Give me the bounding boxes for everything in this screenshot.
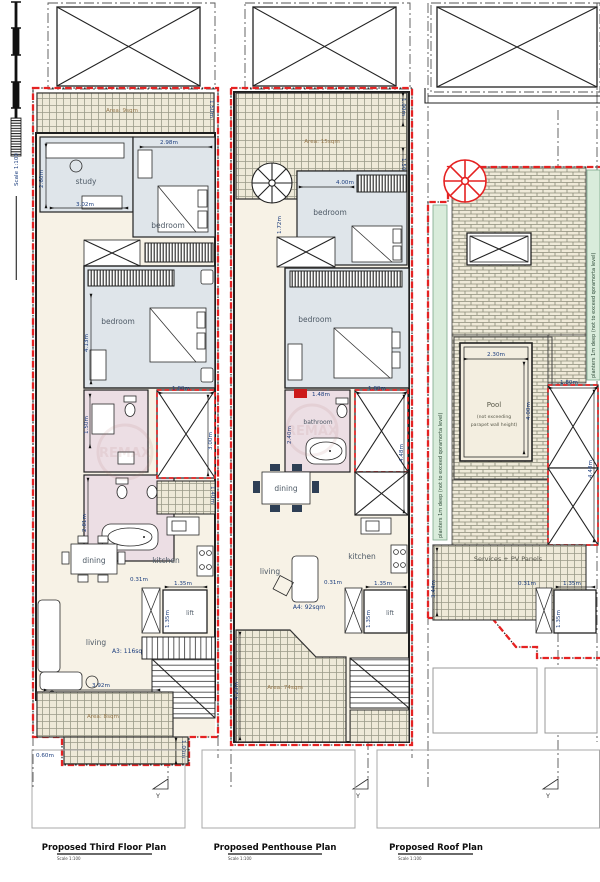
- planter-left-label: planters 1m deep (not to exceed qoramort…: [438, 412, 444, 538]
- terrace-area-label: Area: 9sqm: [106, 108, 138, 114]
- dim-step: 0.31m: [518, 581, 536, 587]
- dim-lift-w: 1.35m: [374, 581, 392, 587]
- dim-shaft-w: 1.80m: [560, 380, 578, 386]
- apartment-area-label: A4: 92sqm: [293, 604, 325, 611]
- dim-pool-w: 2.30m: [487, 352, 505, 358]
- dim-shaft-h: 4.48m: [588, 460, 594, 478]
- dim-shaft-h: 3.00m: [208, 432, 214, 450]
- planter-right-label: planters 1m deep (not to exceed qoramort…: [591, 252, 597, 378]
- lower-roof-right: [545, 668, 597, 733]
- room-label-bedroom2: bedroom: [101, 317, 135, 326]
- room-label-bedroom1: bedroom: [151, 221, 185, 230]
- room-label-dining: dining: [274, 484, 297, 493]
- svg-text:REMAX: REMAX: [286, 424, 338, 439]
- dim-living-w: 3.92m: [92, 683, 110, 689]
- title-roof: Proposed Roof Plan: [389, 843, 483, 853]
- architectural-drawing-sheet: Scale 1:100 Area: 9sqm 1.50m study 2.60m…: [0, 0, 600, 882]
- room-label-kitchen: kitchen: [152, 556, 180, 565]
- dim-terrace-depth: 1.50m: [208, 100, 214, 118]
- dim-bath2-h: 2.81m: [82, 514, 88, 532]
- section-marker: Y: [155, 792, 160, 800]
- dim-terrace-h: 4.23m: [234, 682, 240, 700]
- title-third-floor: Proposed Third Floor Plan: [42, 843, 167, 853]
- room-label-lift: lift: [186, 610, 194, 617]
- dim-shaft-h: 4.48m: [399, 444, 405, 462]
- plan-roof: planters 1m deep (not to exceed qoramort…: [425, 3, 600, 800]
- dim-lift-h: 1.35m: [165, 610, 171, 628]
- dim-balcony-s: 0.60m: [36, 753, 54, 759]
- scale-bar-label: Scale 1:100: [14, 153, 20, 186]
- plan-penthouse: Area: 15sqm 1.00m 1.50m 4.00m bedroom 1.…: [231, 3, 412, 800]
- dim-lift-h: 1.35m: [556, 610, 562, 628]
- pool-note2: parapet wall height): [471, 422, 518, 428]
- stairs-upper: [142, 637, 215, 659]
- room-label-living: living: [260, 567, 280, 576]
- dim-step: 0.31m: [324, 580, 342, 586]
- dim-lift-w: 1.35m: [174, 581, 192, 587]
- terrace2-area-label: Area: 74sqm: [267, 685, 303, 691]
- section-marker: Y: [355, 792, 360, 800]
- svg-text:REMAX: REMAX: [99, 446, 151, 461]
- tub-tag: [294, 389, 307, 398]
- lower-roof-left: [433, 668, 537, 733]
- room-label-lift: lift: [386, 610, 394, 617]
- dim-bed1-w: 2.98m: [160, 140, 178, 146]
- dim-shaft-w: 1.80m: [368, 386, 386, 392]
- dim-study-w: 3.02m: [76, 202, 94, 208]
- terrace-area-label: Area: 15sqm: [304, 139, 340, 145]
- room-label-bedroom1: bedroom: [313, 208, 347, 217]
- spiral-stair: [252, 163, 292, 203]
- room-label-study: study: [76, 177, 97, 186]
- room-label-kitchen: kitchen: [348, 552, 376, 561]
- title-penthouse: Proposed Penthouse Plan: [214, 843, 337, 853]
- dim-terrace-d1: 1.00m: [400, 98, 406, 116]
- dim-bed2-h: 4.13m: [84, 334, 90, 352]
- scale-bar: Scale 1:100: [11, 2, 21, 280]
- services-label: Services + PV Panels: [474, 555, 543, 563]
- scale-note-2: Scale 1:100: [228, 856, 252, 861]
- section-marker: Y: [545, 792, 550, 800]
- pool-label: Pool: [487, 401, 502, 409]
- dim-bed1-w: 4.00m: [336, 180, 354, 186]
- dim-study-h: 2.60m: [39, 170, 45, 188]
- scale-note-3: Scale 1:100: [398, 856, 422, 861]
- dim-hall-h: 1.72m: [277, 216, 283, 234]
- dim-lift-h: 1.35m: [366, 610, 372, 628]
- dim-shaft-w: 1.80m: [172, 386, 190, 392]
- spiral-stair-red: [444, 160, 486, 202]
- pool-note1: (not exceeding: [477, 414, 511, 420]
- room-label-dining: dining: [82, 556, 105, 565]
- plan-titles: Proposed Third Floor Plan Scale 1:100 Pr…: [42, 843, 483, 861]
- room-label-bedroom2: bedroom: [298, 315, 332, 324]
- plan-third-floor: Area: 9sqm 1.50m study 2.60m 3.02m 2.98m…: [33, 3, 218, 800]
- dim-bath1-h: 1.50m: [84, 416, 90, 434]
- dim-yard-h: 1.40m: [209, 486, 215, 504]
- room-label-living: living: [86, 638, 106, 647]
- dim-pool-h: 4.00m: [526, 402, 532, 420]
- scale-note-1: Scale 1:100: [57, 856, 81, 861]
- balcony-area-label: Area: 8sqm: [87, 714, 119, 720]
- dim-services-h: 3.44m: [431, 580, 437, 598]
- dim-step: 0.31m: [130, 577, 148, 583]
- yard: [157, 481, 215, 514]
- floor-plans-svg: Scale 1:100 Area: 9sqm 1.50m study 2.60m…: [0, 0, 600, 882]
- dim-lift-w: 1.35m: [563, 581, 581, 587]
- dim-tub: 1.48m: [312, 392, 330, 398]
